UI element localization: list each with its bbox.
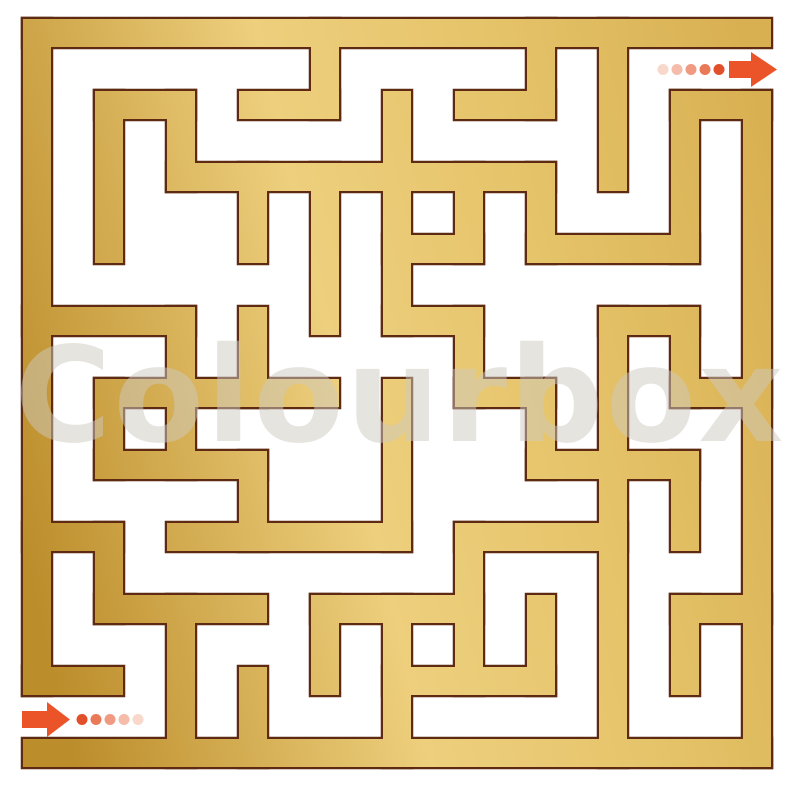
maze-illustration: Colourbox	[0, 0, 800, 792]
maze-svg	[0, 0, 800, 792]
entry-arrow-icon	[22, 702, 70, 737]
exit-arrow-icon	[729, 52, 777, 87]
exit-dots	[658, 64, 725, 75]
maze-walls-fill	[23, 19, 771, 767]
entry-dots	[77, 714, 144, 725]
